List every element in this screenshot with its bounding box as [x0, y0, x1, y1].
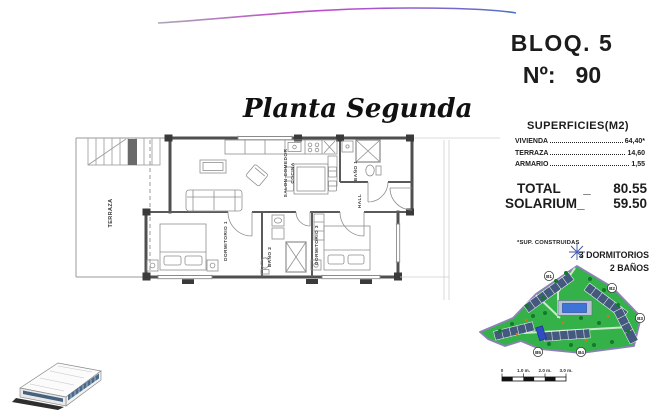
neighbor-unit-lines — [400, 138, 500, 300]
bathroom1-fixtures — [342, 140, 381, 176]
total-value: 80.55 — [613, 181, 647, 196]
row-value: 14,60 — [627, 150, 645, 157]
label-salon-line1: SALON-COMEDOR — [283, 149, 289, 198]
site-label-b4: B4 — [578, 350, 584, 355]
block-title: BLOQ. 5 — [492, 30, 632, 57]
label-bano2: BAÑO 2 — [266, 247, 273, 268]
site-label-b2: B2 — [609, 286, 615, 291]
floor-title: Planta Segunda — [243, 94, 455, 124]
total-label: TOTAL — [517, 181, 561, 196]
solarium-row: SOLARIUM_ 59.50 — [503, 196, 653, 211]
scale-bar: 0 1.0 m. 2.0 m. 3.0 m. — [501, 368, 573, 381]
site-label-b3: B3 — [637, 316, 643, 321]
bed-1 — [147, 224, 218, 271]
number-value: 90 — [576, 62, 602, 89]
superficies-row-armario: ARMARIO 1,55 — [503, 159, 653, 168]
label-dormitorio1: DORMITORIO 1 — [223, 221, 229, 261]
logo-building — [12, 363, 101, 410]
site-label-b5: B5 — [535, 350, 541, 355]
feature-dormitorios: 3 DORMITORIOS — [503, 249, 649, 262]
label-terraza: TERRAZA — [108, 198, 114, 227]
feature-banos: 2 BAÑOS — [503, 262, 649, 275]
sofa — [186, 190, 242, 211]
terrace-outline — [76, 138, 170, 277]
wall-piers — [143, 135, 415, 285]
row-value: 1,55 — [631, 161, 645, 168]
row-label: VIVIENDA — [515, 138, 548, 145]
superficies-panel: SUPERFICIES(M2) VIVIENDA 64,40* TERRAZA … — [503, 120, 653, 276]
dotted-leader — [550, 159, 629, 166]
armchair — [246, 164, 269, 186]
scale-tick-1: 1.0 m. — [517, 368, 530, 373]
decorative-curve — [158, 8, 516, 23]
dotted-leader — [550, 148, 625, 155]
label-bano1: BAÑO 1 — [352, 161, 359, 182]
superficies-rows: VIVIENDA 64,40* TERRAZA 14,60 ARMARIO 1,… — [503, 136, 653, 168]
app-canvas: TERRAZA SALON-COMEDOR COCINA BAÑO 1 HALL… — [0, 0, 660, 410]
total-separator: _ — [583, 181, 591, 196]
features-block: 3 DORMITORIOS 2 BAÑOS — [503, 249, 653, 275]
label-dormitorio3: DORMITORIO 3 — [314, 225, 320, 265]
row-label: ARMARIO — [515, 161, 548, 168]
label-salon-line2: COCINA — [290, 162, 296, 183]
label-hall: HALL — [357, 194, 363, 208]
unit-number-row: Nº: 90 — [492, 62, 632, 89]
scale-tick-2: 2.0 m. — [538, 368, 551, 373]
solarium-value: 59.50 — [613, 196, 647, 211]
scale-tick-0: 0 — [501, 368, 504, 373]
row-value: 64,40* — [625, 138, 645, 145]
floor-plan: TERRAZA SALON-COMEDOR COCINA BAÑO 1 HALL… — [76, 135, 500, 301]
footnote: *SUP. CONSTRUIDAS — [503, 240, 653, 246]
superficies-row-vivienda: VIVIENDA 64,40* — [503, 136, 653, 145]
solarium-label: SOLARIUM_ — [505, 196, 585, 211]
coffee-table — [200, 160, 226, 173]
doors — [228, 182, 412, 236]
exterior-walls — [145, 138, 412, 277]
stairs — [88, 138, 160, 165]
number-label: Nº: — [523, 62, 556, 89]
header-block: BLOQ. 5 Nº: 90 — [492, 30, 632, 89]
superficies-row-terraza: TERRAZA 14,60 — [503, 148, 653, 157]
total-row: TOTAL _ 80.55 — [503, 181, 653, 196]
superficies-title: SUPERFICIES(M2) — [503, 120, 653, 132]
dotted-leader — [550, 136, 623, 143]
kitchen — [225, 140, 337, 186]
pool — [563, 304, 587, 313]
scale-tick-3: 3.0 m. — [559, 368, 572, 373]
row-label: TERRAZA — [515, 150, 548, 157]
totals-block: TOTAL _ 80.55 SOLARIUM_ 59.50 — [503, 181, 653, 211]
